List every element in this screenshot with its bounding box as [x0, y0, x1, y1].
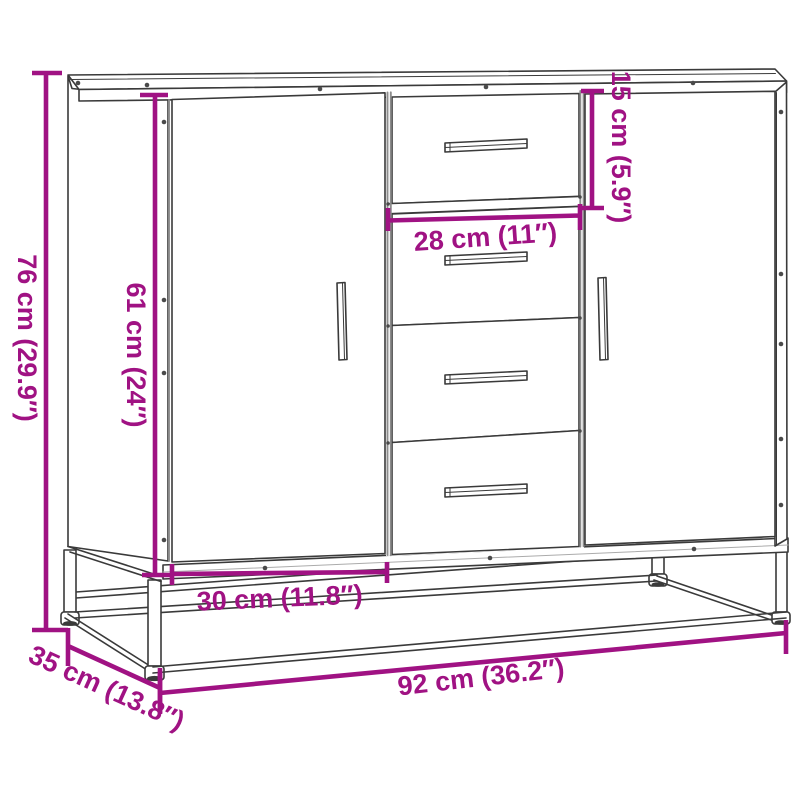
screw-dot [386, 324, 390, 328]
leg-post [776, 550, 787, 612]
overall-height-dimension: 76 cm (29.9″) [12, 73, 68, 630]
overall-height-label: 76 cm (29.9″) [12, 254, 42, 422]
base-frame [61, 538, 790, 681]
depth-label: 35 cm (13.8″) [24, 639, 189, 736]
screw-dot [578, 429, 582, 433]
screw-dot [386, 202, 390, 206]
screw-dot [318, 87, 323, 92]
left-door-front [172, 93, 385, 562]
screw-dot [263, 566, 268, 571]
screw-dot [779, 503, 784, 508]
screw-dot [162, 538, 167, 543]
screw-dot [162, 298, 167, 303]
right-door-handle [598, 278, 608, 361]
left-door-handle [337, 283, 347, 361]
screw-dot [386, 441, 390, 445]
inner-height-label: 61 cm (24″) [121, 282, 151, 427]
screw-dot [578, 195, 582, 199]
screw-dot [779, 272, 784, 277]
leg-post [64, 550, 76, 612]
screw-dot [692, 547, 697, 552]
left-door [169, 93, 385, 562]
overall-width-dimension: 92 cm (36.2″) [160, 620, 786, 713]
sideboard-dimension-diagram: 76 cm (29.9″) 61 cm (24″) 15 cm (5.9″) 2… [0, 0, 800, 800]
rear-lower-bar [75, 575, 657, 618]
screw-dot [145, 83, 150, 88]
screw-dot [779, 342, 784, 347]
screw-dot [779, 437, 784, 442]
diagram-page: 76 cm (29.9″) 61 cm (24″) 15 cm (5.9″) 2… [0, 0, 800, 800]
cabinet-body [68, 69, 787, 582]
top-drawer-height-label: 15 cm (5.9″) [606, 71, 636, 224]
screw-dot [488, 556, 493, 561]
screw-dot [691, 81, 696, 86]
screw-dot [76, 81, 81, 86]
screw-dot [578, 316, 582, 320]
screw-dot [162, 371, 167, 376]
screw-dot [162, 120, 167, 125]
door-width-label: 30 cm (11.8″) [196, 579, 363, 616]
screw-dot [484, 85, 489, 90]
screw-dot [779, 110, 784, 115]
right-lower-bar [654, 576, 786, 624]
drawer-column [386, 91, 584, 556]
leg-post [148, 580, 161, 666]
